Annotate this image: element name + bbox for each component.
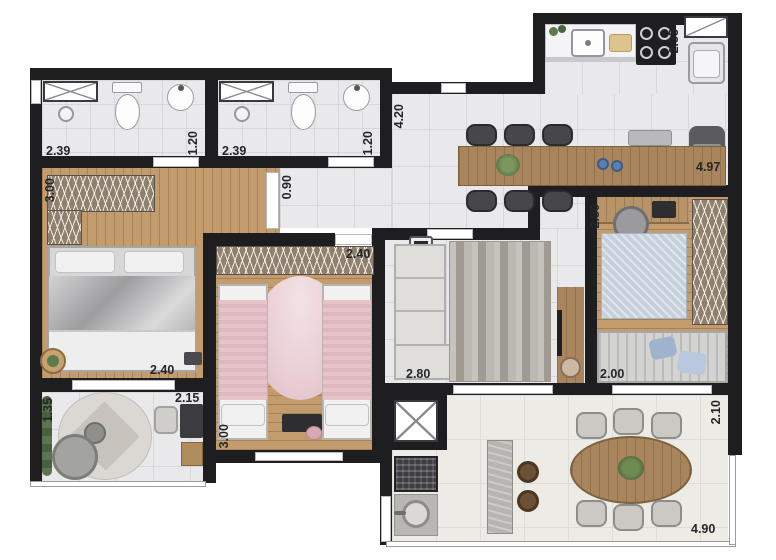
dining-chair-4 — [466, 190, 497, 212]
balcony-sink — [402, 500, 430, 528]
bed-pillow-left — [55, 251, 115, 273]
balcony-chair-5 — [613, 504, 644, 531]
pet-bed — [560, 357, 581, 378]
washbasin-faucet-2 — [354, 85, 360, 91]
wall-entry — [392, 82, 545, 94]
balcony-chair-6 — [651, 500, 682, 527]
sofa-cushion-line-2 — [396, 310, 444, 312]
balcony-stool-1 — [517, 461, 539, 483]
wall-bedroom2-left — [203, 233, 216, 483]
den-armchair — [52, 434, 98, 480]
bed-bench — [184, 352, 202, 365]
balcony-chair-3 — [651, 412, 682, 439]
living-dining-opening — [427, 229, 473, 239]
cutting-board — [609, 34, 632, 52]
dim-bedroom2-length: 3.00 — [217, 417, 231, 455]
study-wardrobe — [692, 199, 728, 325]
den-desk-chair — [154, 406, 178, 434]
balcony-island — [487, 440, 513, 534]
master-den-sliding-door — [72, 380, 175, 390]
dim-study-sofa-wall: 2.00 — [600, 368, 624, 381]
bedroom2-door — [335, 234, 372, 245]
wall-bathroom-divider — [205, 68, 218, 168]
counter-bowl-2 — [611, 160, 623, 172]
hallway-floor — [280, 168, 392, 228]
dim-bathroom2-depth: 1.20 — [361, 124, 375, 162]
outer-wall-right — [728, 13, 742, 455]
bed-duvet — [49, 276, 195, 334]
kitchen-sink-drain — [585, 40, 591, 46]
burner-3 — [640, 46, 653, 59]
living-balcony-sliding-door — [453, 385, 553, 394]
tv-on-panel — [557, 310, 562, 356]
sofa-cushion-line-1 — [396, 277, 444, 279]
dim-den-width: 2.15 — [175, 392, 199, 405]
dim-master-length: 2.40 — [150, 364, 174, 377]
floor-plan: 2.39 1.20 2.39 1.20 4.20 2.35 4.97 3.00 … — [0, 0, 776, 560]
dim-bathroom2-width: 2.39 — [222, 145, 246, 158]
daybed-pillow-2 — [677, 350, 708, 376]
balcony-right-rail — [729, 455, 736, 545]
bathroom1-window — [31, 80, 41, 104]
dim-counter-length: 4.97 — [696, 161, 720, 174]
balcony-stool-2 — [517, 490, 539, 512]
balcony-chair-2 — [613, 408, 644, 435]
dim-dining-length: 4.20 — [392, 97, 406, 135]
shower-head — [58, 106, 74, 122]
dim-balcony-length: 4.90 — [691, 523, 715, 536]
study-rug — [601, 233, 687, 319]
living-rug — [449, 241, 551, 382]
balcony-chair-4 — [576, 500, 607, 527]
counter-bowl-1 — [597, 158, 609, 170]
kitchen-bench — [628, 130, 672, 146]
sofa — [394, 244, 446, 346]
dim-den-depth: 1.35 — [41, 391, 55, 429]
bed-pillow-right — [124, 251, 184, 273]
bedroom2-window — [255, 452, 343, 461]
service-window — [684, 16, 728, 38]
shaft — [394, 400, 438, 442]
dim-bathroom1-width: 2.39 — [46, 145, 70, 158]
toilet — [112, 82, 142, 93]
entry-door — [441, 83, 466, 93]
balcony-chair-1 — [576, 412, 607, 439]
dim-master-width: 3.00 — [43, 171, 57, 209]
washbasin-faucet — [178, 85, 184, 91]
kitchen-herbs — [549, 27, 558, 36]
balcony-sink-faucet — [394, 511, 406, 515]
study-laptop — [652, 201, 676, 218]
single-bed-left-blanket — [219, 300, 267, 400]
toilet-bowl-2 — [291, 94, 316, 130]
dining-chair-3 — [542, 124, 573, 146]
den-desk — [180, 404, 203, 438]
barbecue-grill — [394, 456, 438, 492]
shower-box — [43, 81, 98, 102]
dim-corridor-width: 0.90 — [280, 168, 294, 206]
shower-box-2 — [219, 81, 274, 102]
dim-service-depth: 2.35 — [667, 22, 681, 60]
master-corridor-door — [266, 172, 279, 229]
master-wardrobe-top — [47, 175, 155, 212]
single-bed-right-pillow — [325, 404, 369, 426]
toilet-bowl — [115, 94, 140, 130]
bedroom2-pouf — [306, 426, 322, 440]
balcony-side-window — [381, 496, 391, 542]
dining-chair-6 — [542, 190, 573, 212]
dim-living-width: 2.80 — [406, 368, 430, 381]
table-centerpiece — [496, 154, 520, 176]
study-balcony-window — [612, 385, 712, 394]
toilet-2 — [288, 82, 318, 93]
balcony-bottom-rail — [386, 541, 736, 547]
dim-study-width: 2.80 — [588, 197, 602, 235]
kitchen-herbs-2 — [558, 25, 566, 33]
wall-bedroom2-top — [203, 233, 335, 246]
den-glass-rail — [30, 481, 206, 487]
balcony-centerpiece — [618, 456, 644, 480]
master-wardrobe-side — [47, 210, 82, 245]
dim-bedroom2-width: 2.40 — [346, 248, 370, 261]
shower-head-2 — [234, 106, 250, 122]
burner-1 — [640, 27, 653, 40]
dining-chair-1 — [466, 124, 497, 146]
dining-chair-5 — [504, 190, 535, 212]
bedside-plant — [47, 355, 59, 367]
wall-bathroom2-right — [380, 68, 392, 168]
single-bed-right-blanket — [323, 300, 371, 400]
laundry-tank-basin — [693, 50, 720, 78]
dining-chair-2 — [504, 124, 535, 146]
dim-balcony-depth: 2.10 — [709, 393, 723, 431]
dim-bathroom1-depth: 1.20 — [186, 124, 200, 162]
den-shelf — [181, 442, 203, 466]
